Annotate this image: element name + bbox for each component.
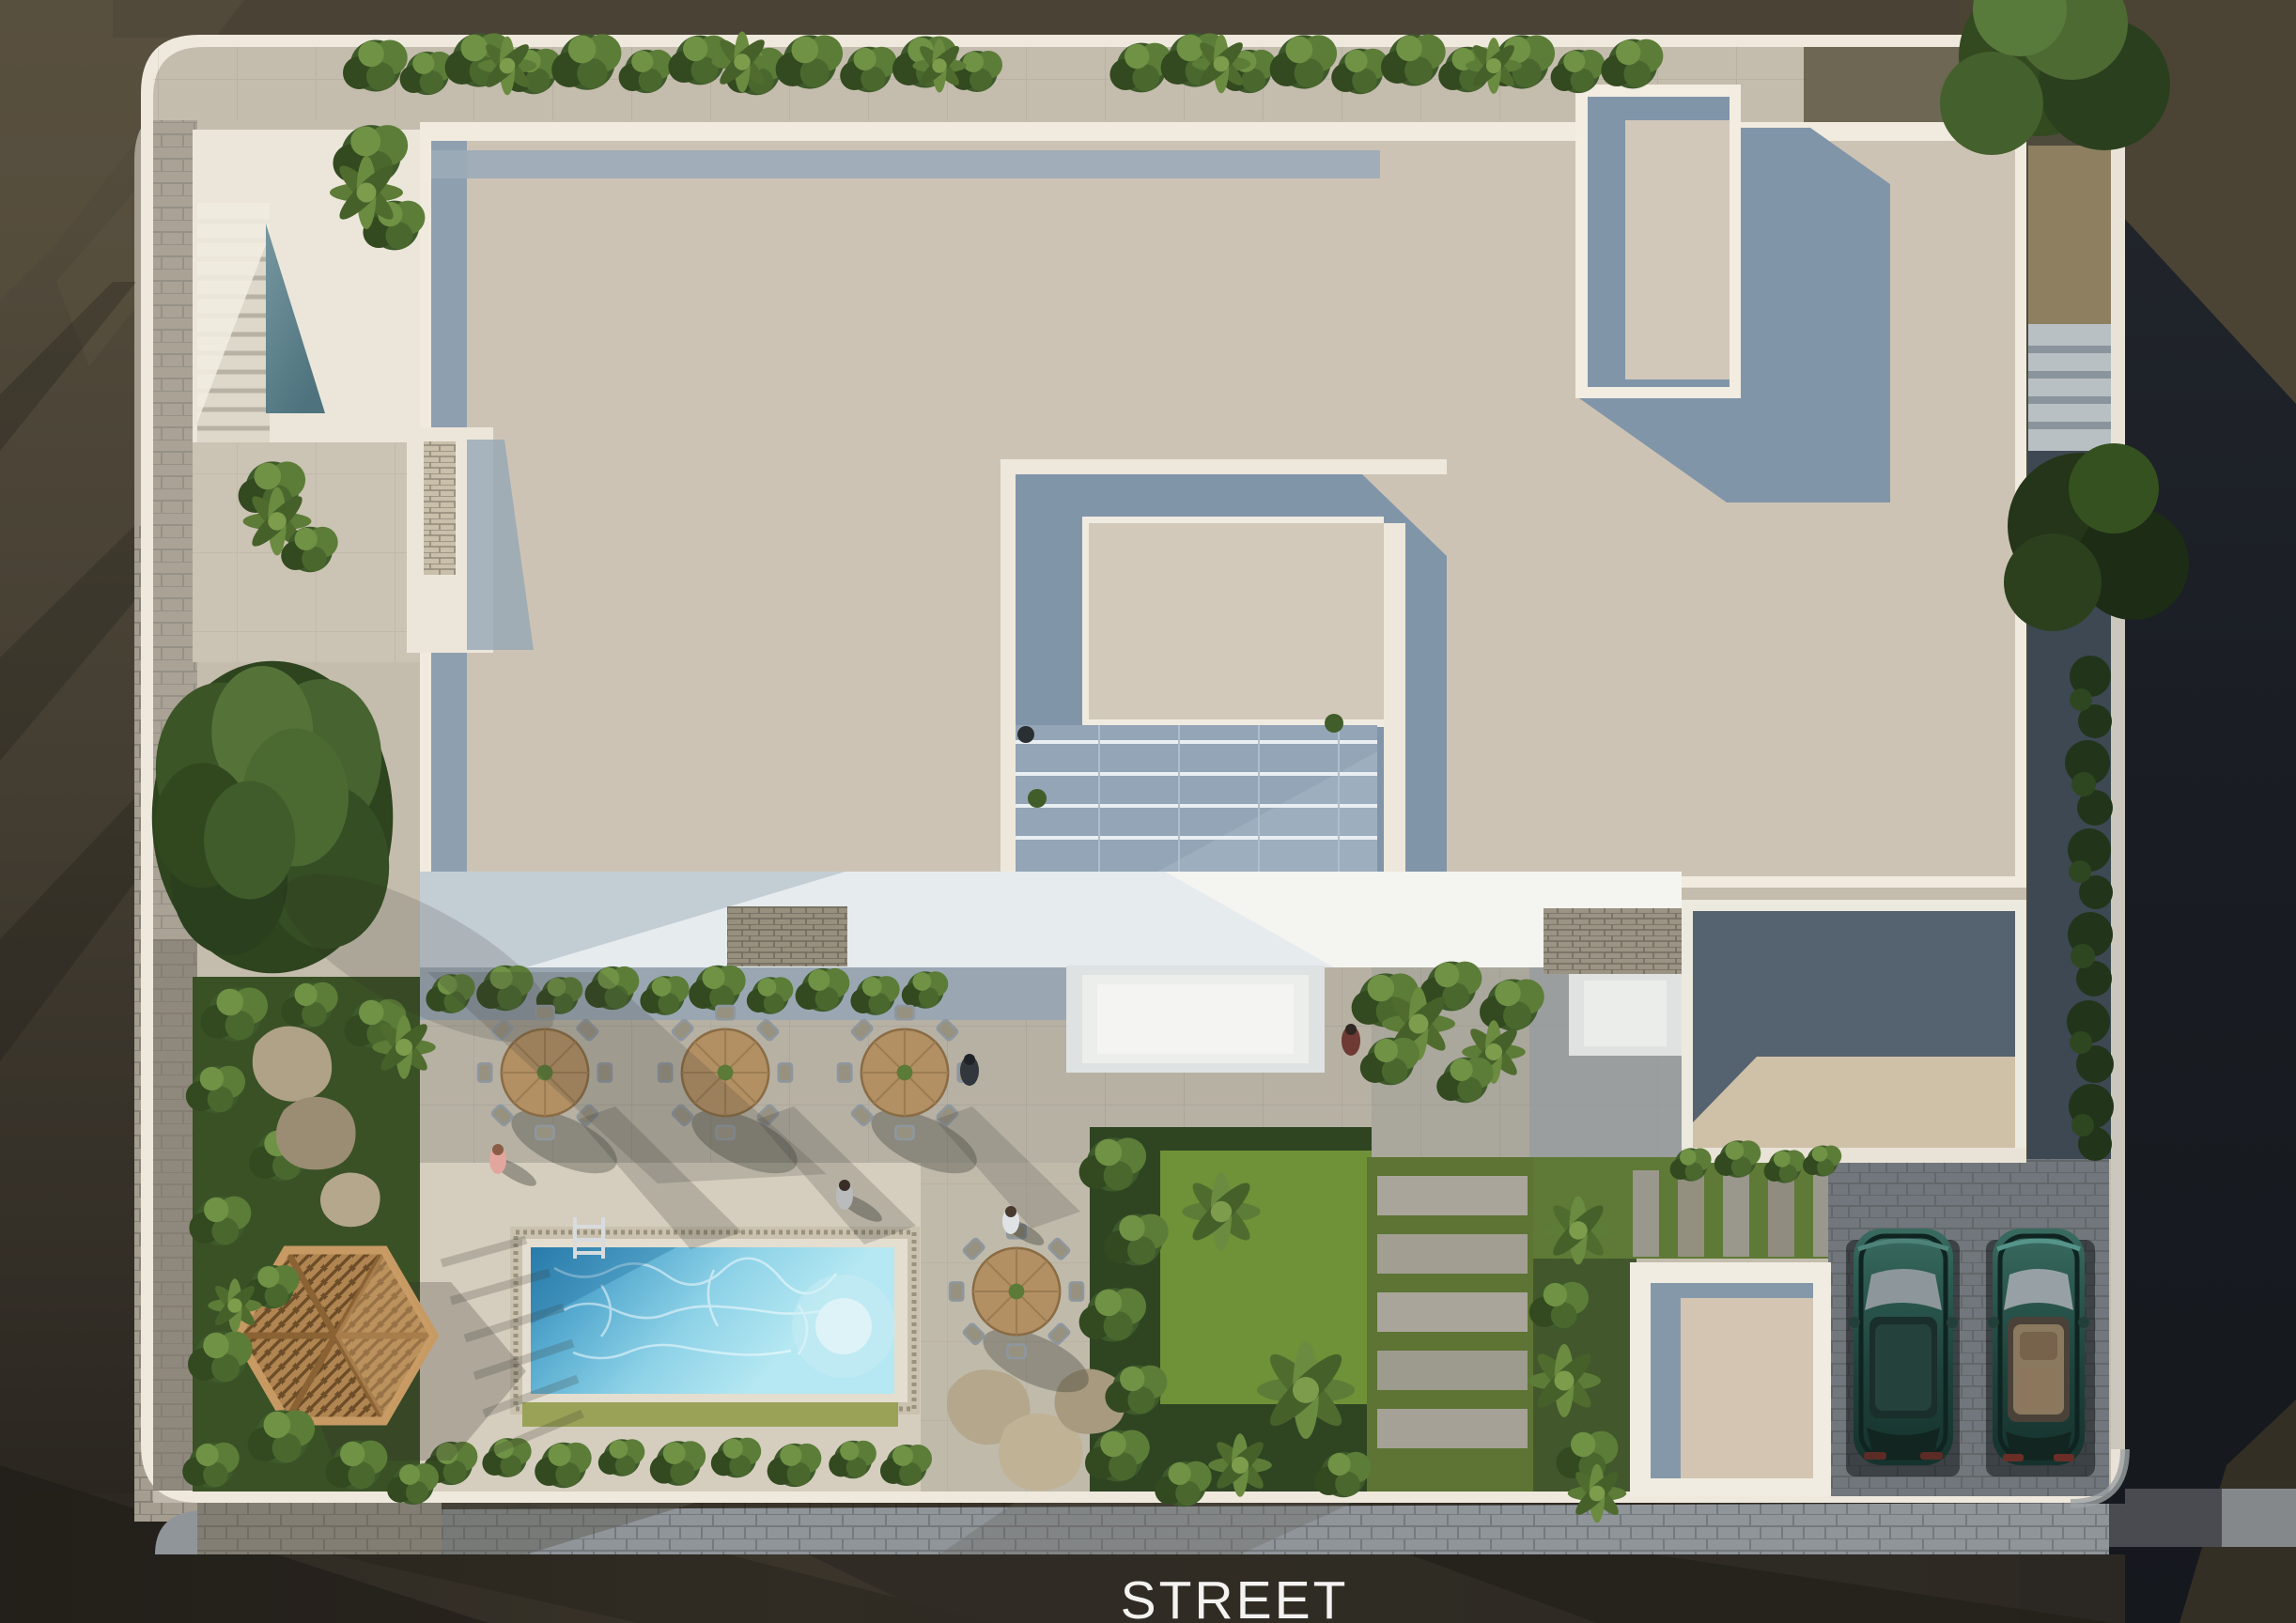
svg-text:STREET: STREET (1121, 1570, 1349, 1623)
